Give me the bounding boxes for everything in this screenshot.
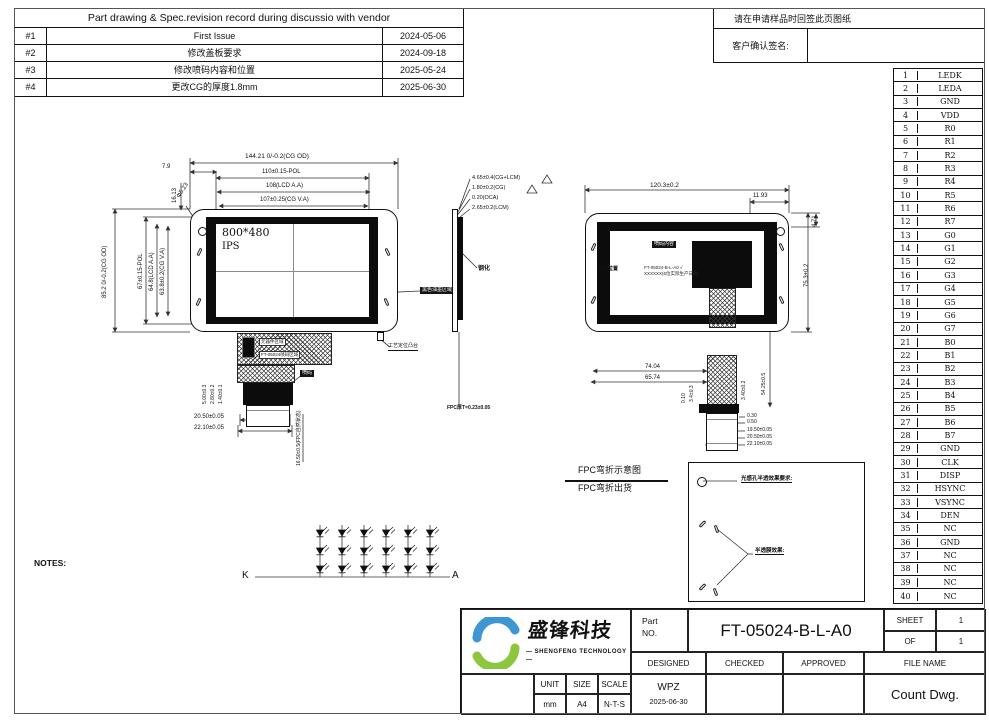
pin-row: 11 R6 xyxy=(894,202,982,215)
dim-label: 144.21 0/-0.2(CG OD) xyxy=(245,153,309,160)
pin-row: 6 R1 xyxy=(894,136,982,149)
pin-number: 35 xyxy=(894,524,918,533)
part-number: FT-05024-B-L-A0 xyxy=(688,609,884,652)
checked-label: CHECKED xyxy=(706,652,783,674)
pin-number: 19 xyxy=(894,311,918,320)
projection-symbol-cell xyxy=(461,674,534,715)
pin-name: R3 xyxy=(918,164,982,173)
pin-name: G4 xyxy=(918,284,982,293)
size-label: SIZE xyxy=(566,674,598,694)
dim-label: 107±0.25(CG V.A) xyxy=(260,197,309,204)
pin-name: R7 xyxy=(918,217,982,226)
revision-rows: #1 First Issue 2024-05-06 #2 修改盖板要求 2024… xyxy=(15,28,463,96)
fpc-components-label: 元器件区域 xyxy=(259,338,286,346)
pin-row: 5 R0 xyxy=(894,122,982,135)
revision-date: 2024-09-18 xyxy=(383,45,463,61)
dim-label: 63.8±0.2(CG V.A) xyxy=(160,248,167,295)
pin-number: 26 xyxy=(894,404,918,413)
pin-name: VSYNC xyxy=(918,498,982,507)
pin-row: 13 G0 xyxy=(894,229,982,242)
revision-date: 2025-05-24 xyxy=(383,62,463,78)
dim-label: 1.40±0.1 xyxy=(219,385,225,404)
pin-number: 14 xyxy=(894,244,918,253)
unit-value: mm xyxy=(534,694,566,715)
revision-date: 2025-06-30 xyxy=(383,79,463,96)
signature-area[interactable] xyxy=(808,29,984,62)
front-fpc-component xyxy=(242,337,255,358)
pin-row: 30 CLK xyxy=(894,456,982,469)
detail-text-1: 光感孔半透效果要求: xyxy=(741,467,792,485)
panel-type: IPS xyxy=(222,241,240,252)
revision-row: #3 修改喷码内容和位置 2025-05-24 xyxy=(15,62,463,79)
pin-row: 17 G4 xyxy=(894,283,982,296)
dim-label: 75.3±0.2 xyxy=(804,264,811,287)
pin-row: 23 B2 xyxy=(894,363,982,376)
callout-code-position: 喷码位置 xyxy=(598,267,618,273)
pin-row: 1 LEDK xyxy=(894,69,982,82)
callout-code: 喷码 xyxy=(300,370,314,377)
pin-number: 36 xyxy=(894,538,918,547)
part-label-1: Part xyxy=(642,616,658,626)
sheet-label: SHEET xyxy=(884,609,936,631)
corner-mark xyxy=(699,520,707,528)
pin-number: 39 xyxy=(894,578,918,587)
dim-label: 64.8(LCD A.A) xyxy=(149,252,156,291)
pin-row: 25 B4 xyxy=(894,389,982,402)
sheet-value: 1 xyxy=(936,609,986,631)
screen-resolution: 800*480 xyxy=(222,227,270,239)
dim-label: 2.80±0.2 xyxy=(211,385,217,404)
pin-number: 9 xyxy=(894,177,918,186)
pin-number: 18 xyxy=(894,298,918,307)
pin-name: R5 xyxy=(918,191,982,200)
led-cathode-label: K xyxy=(242,570,249,581)
pin-number: 21 xyxy=(894,338,918,347)
company-name-cn: 盛锋科技 xyxy=(527,620,613,642)
pin-name: B1 xyxy=(918,351,982,360)
pin-name: R1 xyxy=(918,137,982,146)
callout-code-content: 喷码内容 xyxy=(652,241,676,248)
unit-label: UNIT xyxy=(534,674,566,694)
pin-name: G6 xyxy=(918,311,982,320)
sensor-hole xyxy=(198,227,207,236)
front-fpc-stiffener xyxy=(243,383,293,405)
pin-row: 27 B6 xyxy=(894,416,982,429)
pin-name: B0 xyxy=(918,338,982,347)
drawing-sheet: Part drawing & Spec.revision record duri… xyxy=(0,0,989,720)
size-value: A4 xyxy=(566,694,598,715)
revision-no: #3 xyxy=(15,62,47,78)
pin-name: R2 xyxy=(918,151,982,160)
dim-label: 120.3±0.2 xyxy=(650,182,679,189)
pin-number: 13 xyxy=(894,231,918,240)
scale-value: N-T-S xyxy=(598,694,631,715)
pin-number: 5 xyxy=(894,124,918,133)
dim-label: 11.93 xyxy=(753,193,768,200)
pin-number: 8 xyxy=(894,164,918,173)
pin-row: 8 R3 xyxy=(894,162,982,175)
pin-name: G3 xyxy=(918,271,982,280)
callout-process-tab: 工艺定位凸台 xyxy=(388,344,418,351)
pin-table: 1 LEDK 2 LEDA 3 GND 4 VDD 5 R0 6 R1 7 R2… xyxy=(893,68,983,604)
pin-name: B6 xyxy=(918,418,982,427)
pin-name: G1 xyxy=(918,244,982,253)
detail-text-2: 半透膜效果: xyxy=(755,539,784,557)
revision-row: #4 更改CG的厚度1.8mm 2025-06-30 xyxy=(15,79,463,96)
fpc-code-label: FT-05024喷码区域 xyxy=(259,351,300,359)
dim-label: 3.40±0.2 xyxy=(742,381,748,400)
pin-name: NC xyxy=(918,578,982,587)
side-view-lcm xyxy=(458,217,463,320)
pin-row: 15 G2 xyxy=(894,256,982,269)
of-label: OF xyxy=(884,631,936,652)
of-value: 1 xyxy=(936,631,986,652)
pin-number: 20 xyxy=(894,324,918,333)
dim-label: 85.2 0/-0.2(CG OD) xyxy=(102,246,109,298)
pin-name: DEN xyxy=(918,511,982,520)
pin-row: 32 HSYNC xyxy=(894,483,982,496)
dim-label: 20.50±0.05 xyxy=(194,414,224,421)
pin-number: 6 xyxy=(894,137,918,146)
notes-block: NOTES: xyxy=(34,556,334,570)
designed-value: WPZ xyxy=(632,682,705,693)
rear-fpc xyxy=(709,288,736,328)
pin-name: DISP xyxy=(918,471,982,480)
pin-number: 7 xyxy=(894,151,918,160)
pin-row: 18 G5 xyxy=(894,296,982,309)
pin-row: 29 GND xyxy=(894,443,982,456)
pin-name: NC xyxy=(918,524,982,533)
pin-number: 23 xyxy=(894,364,918,373)
pin-name: B3 xyxy=(918,378,982,387)
revision-desc: 修改盖板要求 xyxy=(47,45,383,61)
fpc-bend-label-2: FPC弯折出货 xyxy=(578,484,632,494)
pin-number: 32 xyxy=(894,484,918,493)
pin-number: 15 xyxy=(894,257,918,266)
dim-label: 67±0.15-POL xyxy=(138,253,145,289)
dim-label: 110±0.15-POL xyxy=(262,169,301,176)
signoff-box: 请在申请样品时回签此页图纸 客户确认签名: xyxy=(713,8,985,63)
pin-name: B7 xyxy=(918,431,982,440)
pin-row: 14 G1 xyxy=(894,242,982,255)
revision-row: #1 First Issue 2024-05-06 xyxy=(15,28,463,45)
pin-number: 33 xyxy=(894,498,918,507)
pin-name: LEDA xyxy=(918,84,982,93)
dim-label: 22.10±0.05 xyxy=(194,425,224,432)
scale-label: SCALE xyxy=(598,674,631,694)
dim-label: 0.10 xyxy=(682,393,688,403)
checked-cell[interactable] xyxy=(706,674,783,715)
dim-label: 7.9 xyxy=(162,164,170,171)
dim-label: FPC厚T=0.23±0.05 xyxy=(447,406,490,412)
pin-number: 28 xyxy=(894,431,918,440)
pin-number: 22 xyxy=(894,351,918,360)
designed-cell: WPZ 2025-06-30 xyxy=(631,674,706,715)
rear-fpc-block xyxy=(692,241,752,288)
pin-number: 2 xyxy=(894,84,918,93)
revision-desc: 修改喷码内容和位置 xyxy=(47,62,383,78)
dim-label: 2.65±0.2(LCM) xyxy=(472,205,509,211)
pin-name: NC xyxy=(918,551,982,560)
revision-no: #1 xyxy=(15,28,47,44)
pin-name: R4 xyxy=(918,177,982,186)
pin-number: 4 xyxy=(894,111,918,120)
rear-fpc-connector xyxy=(706,413,738,451)
pin-name: G0 xyxy=(918,231,982,240)
detail-title-1: 光感孔半透效果要求: xyxy=(741,474,792,483)
revision-row: #2 修改盖板要求 2024-09-18 xyxy=(15,45,463,62)
dim-label: 108(LCD A.A) xyxy=(266,183,303,190)
part-no-label-cell: Part NO. xyxy=(631,609,688,652)
pin-row: 19 G6 xyxy=(894,309,982,322)
corner-mark xyxy=(699,583,707,591)
dim-label: 22.10±0.05 xyxy=(747,442,772,448)
pin-name: NC xyxy=(918,564,982,573)
pin-number: 17 xyxy=(894,284,918,293)
company-name-en: — SHENGFENG TECHNOLOGY — xyxy=(526,648,630,664)
pin-number: 37 xyxy=(894,551,918,560)
dim-label: 0.20(OCA) xyxy=(472,195,498,201)
led-grid xyxy=(317,527,440,573)
designed-date: 2025-06-30 xyxy=(632,697,705,706)
pin-name: HSYNC xyxy=(918,484,982,493)
pin-row: 33 VSYNC xyxy=(894,496,982,509)
pin-number: 40 xyxy=(894,592,918,601)
title-block: 盛锋科技 — SHENGFENG TECHNOLOGY — UNIT SIZE … xyxy=(460,608,985,714)
pin-number: 34 xyxy=(894,511,918,520)
pin-name: R6 xyxy=(918,204,982,213)
sensor-hole-detail xyxy=(697,477,707,487)
revision-no: #4 xyxy=(15,79,47,96)
dim-label: 4.71 xyxy=(812,215,819,227)
pin-name: B2 xyxy=(918,364,982,373)
sensor-hole-detail-box: 光感孔半透效果要求: 半透膜效果: xyxy=(688,462,865,602)
rear-hole xyxy=(776,227,785,236)
pin-number: 12 xyxy=(894,217,918,226)
process-tab xyxy=(377,332,384,341)
pin-name: G2 xyxy=(918,257,982,266)
pin-number: 16 xyxy=(894,271,918,280)
pin-name: G7 xyxy=(918,324,982,333)
revision-desc: First Issue xyxy=(47,28,383,44)
dim-label: 0.50 xyxy=(747,420,757,426)
pin-name: GND xyxy=(918,97,982,106)
pin-name: B5 xyxy=(918,404,982,413)
pin-number: 38 xyxy=(894,564,918,573)
callout-ink-area: 黑色油墨区域 xyxy=(420,287,454,294)
divider xyxy=(565,480,668,482)
pin-name: VDD xyxy=(918,111,982,120)
pin-name: GND xyxy=(918,538,982,547)
pin-number: 1 xyxy=(894,71,918,80)
pin-row: 34 DEN xyxy=(894,509,982,522)
front-fpc-connector xyxy=(246,405,290,427)
approved-label: APPROVED xyxy=(783,652,864,674)
pin-row: 12 R7 xyxy=(894,216,982,229)
logo-cell: 盛锋科技 — SHENGFENG TECHNOLOGY — xyxy=(461,609,631,674)
signoff-label: 客户确认签名: xyxy=(714,29,808,62)
revision-date: 2024-05-06 xyxy=(383,28,463,44)
tempered-label: 钢化 xyxy=(478,266,490,273)
pin-number: 24 xyxy=(894,378,918,387)
rear-fpc-tail xyxy=(707,355,737,405)
pin-name: B4 xyxy=(918,391,982,400)
pin-number: 3 xyxy=(894,97,918,106)
dim-label: 5.00±0.3 xyxy=(203,385,209,404)
pin-number: 29 xyxy=(894,444,918,453)
pin-name: R0 xyxy=(918,124,982,133)
pin-number: 27 xyxy=(894,418,918,427)
revision-no: #2 xyxy=(15,45,47,61)
led-anode-label: A xyxy=(452,570,459,581)
pin-row: 24 B3 xyxy=(894,376,982,389)
pin-number: 31 xyxy=(894,471,918,480)
signoff-notice: 请在申请样品时回签此页图纸 xyxy=(714,9,984,29)
pin-row: 31 DISP xyxy=(894,469,982,482)
pin-row: 10 R5 xyxy=(894,189,982,202)
dim-label: 3.4±0.3 xyxy=(690,385,696,402)
pin-number: 10 xyxy=(894,191,918,200)
pin-name: NC xyxy=(918,592,982,601)
pin-row: 28 B7 xyxy=(894,429,982,442)
pin-row: 26 B5 xyxy=(894,403,982,416)
fpc-bend-label-1: FPC弯折示意图 xyxy=(578,466,641,476)
pin-row: 35 NC xyxy=(894,523,982,536)
notes-title: NOTES: xyxy=(34,556,334,570)
pin-row: 38 NC xyxy=(894,563,982,576)
pin-name: GND xyxy=(918,444,982,453)
pin-row: 39 NC xyxy=(894,576,982,589)
company-logo-icon xyxy=(470,617,522,669)
pin-row: 3 GND xyxy=(894,96,982,109)
dim-label: 20.50±0.05 xyxy=(747,435,772,441)
pin-row: 36 GND xyxy=(894,536,982,549)
detail-title-2: 半透膜效果: xyxy=(755,546,784,555)
file-name-label: FILE NAME xyxy=(864,652,986,674)
pin-name: LEDK xyxy=(918,71,982,80)
corner-mark xyxy=(714,525,720,534)
pin-name: CLK xyxy=(918,458,982,467)
dim-label: 1.80±0.2(CG) xyxy=(472,185,505,191)
revision-table: Part drawing & Spec.revision record duri… xyxy=(14,8,464,97)
pin-row: 20 G7 xyxy=(894,323,982,336)
dim-label: 54.25±0.5 xyxy=(762,373,768,395)
dim-label: 4.65±0.4(CG+LCM) xyxy=(472,175,520,181)
spray-code-line2: XXXXXX(6位实际生产日期) xyxy=(644,272,699,277)
pin-row: 4 VDD xyxy=(894,109,982,122)
pin-number: 11 xyxy=(894,204,918,213)
dim-label: 19.50±0.05 xyxy=(747,428,772,434)
approved-cell[interactable] xyxy=(783,674,864,715)
revision-table-title: Part drawing & Spec.revision record duri… xyxy=(15,9,463,28)
pin-row: 21 B0 xyxy=(894,336,982,349)
file-name-value: Count Dwg. xyxy=(864,674,986,715)
front-fpc-neck xyxy=(237,365,295,383)
pin-row: 16 G3 xyxy=(894,269,982,282)
pin-name: G5 xyxy=(918,298,982,307)
dim-label: 74.04 xyxy=(645,364,660,371)
pin-row: 40 NC xyxy=(894,589,982,602)
part-label-2: NO. xyxy=(642,628,657,638)
rear-fpc-stiffener xyxy=(699,404,739,413)
corner-mark xyxy=(713,588,719,597)
pin-number: 25 xyxy=(894,391,918,400)
pin-row: 7 R2 xyxy=(894,149,982,162)
revision-desc: 更改CG的厚度1.8mm xyxy=(47,79,383,96)
pin-row: 2 LEDA xyxy=(894,82,982,95)
designed-label: DESIGNED xyxy=(631,652,706,674)
dim-label: 16.50±0.5(FPC自然状态) xyxy=(297,410,303,466)
pin-row: 9 R4 xyxy=(894,176,982,189)
dim-label: 65.74 xyxy=(645,375,660,382)
pin-row: 37 NC xyxy=(894,549,982,562)
pin-number: 30 xyxy=(894,458,918,467)
pin-row: 22 B1 xyxy=(894,349,982,362)
